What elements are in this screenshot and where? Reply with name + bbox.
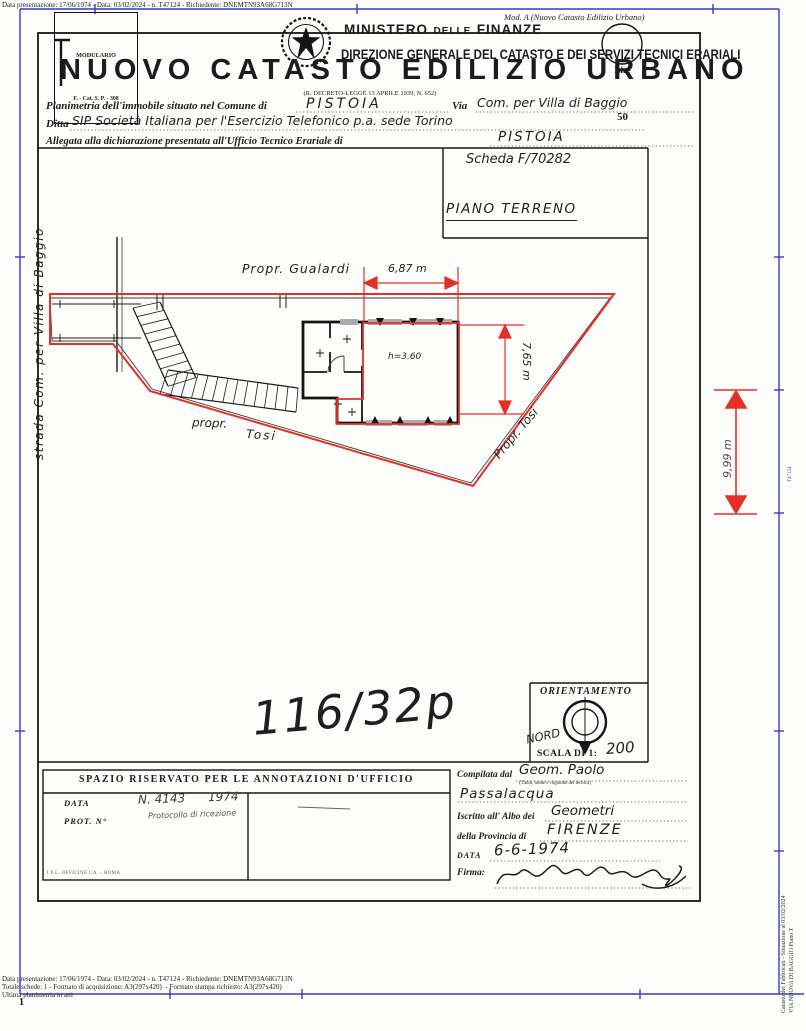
scanned-cadastral-sheet: { "scan": { "top_meta": "Data presentazi… bbox=[0, 0, 806, 1031]
compilata-value: Geom. Paolo bbox=[519, 763, 604, 779]
form-via-value: Com. per Villa di Baggio bbox=[477, 96, 627, 110]
signature-scrawl bbox=[497, 866, 686, 889]
form-allegata-label: Allegata alla dichiarazione presentata a… bbox=[46, 136, 343, 148]
bottom-meta-line-2: Totale schede: 1 - Formato di acquisizio… bbox=[2, 983, 282, 991]
stamp-underline bbox=[298, 807, 350, 809]
printer-mark: I.P.L. OFFICINE CA. - ROMA bbox=[47, 871, 121, 877]
lire-amount: 50 bbox=[604, 111, 641, 123]
cross-ticks bbox=[316, 335, 356, 416]
side-meta-line-2: VIA NUOVA DI BAGGIO Piano T bbox=[788, 845, 796, 1013]
top-meta-line: Data presentazione: 17/06/1974 - Data: 0… bbox=[2, 1, 293, 9]
dim-width-label: 6,87 m bbox=[388, 263, 427, 276]
room-height-label: h=3.60 bbox=[388, 352, 421, 362]
drawing-area-borders bbox=[38, 148, 648, 762]
floor-label: PIANO TERRENO bbox=[446, 202, 577, 221]
page-number: 1 bbox=[19, 997, 24, 1009]
sill-ticks bbox=[371, 318, 454, 424]
ruler-label: T47124 bbox=[788, 466, 794, 482]
form-allegata-value: PISTOIA bbox=[498, 130, 565, 146]
compiler-data-value: 6-6-1974 bbox=[494, 840, 571, 860]
document-line-art bbox=[0, 0, 806, 1031]
iscritto-label: Iscritto all' Albo dei bbox=[457, 812, 535, 823]
walkway bbox=[52, 294, 286, 342]
neighbor-tosi-left-2: Tosi bbox=[246, 428, 278, 444]
page-title: NUOVO CATASTO EDILIZIO URBANO bbox=[60, 54, 680, 87]
dim-height-arrow bbox=[460, 325, 524, 414]
annotations-prot-label: PROT. N° bbox=[64, 817, 107, 827]
ministry-word-3: FINANZE bbox=[477, 22, 543, 37]
iscritto-value: Geometri bbox=[551, 804, 614, 820]
firma-label: Firma: bbox=[457, 868, 485, 879]
compilata-label: Compilata dal bbox=[457, 770, 512, 781]
neighbor-tosi-left-1: propr. bbox=[192, 416, 228, 431]
annotations-title: SPAZIO RISERVATO PER LE ANNOTAZIONI D'UF… bbox=[43, 774, 450, 786]
dim-right-label: 9,99 m bbox=[722, 439, 735, 478]
scale-label: SCALA DI 1: bbox=[537, 749, 597, 760]
side-meta: Catasto dei Fabbricati - Situazione al 0… bbox=[780, 845, 796, 1013]
scheda-ref: Scheda F/70282 bbox=[466, 153, 571, 168]
form-line1-label: Planimetria dell'immobile situato nel Co… bbox=[46, 100, 267, 113]
compilata-value-2: Passalacqua bbox=[460, 787, 555, 803]
compass bbox=[564, 697, 606, 755]
bottom-meta-line-3: Ultima planimetria in atti bbox=[2, 991, 73, 999]
compiler-data-label: DATA bbox=[457, 851, 481, 860]
neighbor-gualardi-label: Propr. Gualardi bbox=[242, 262, 350, 276]
building bbox=[303, 318, 458, 426]
ministry-word-2: DELLE bbox=[433, 26, 471, 37]
annotations-data-label: DATA bbox=[64, 799, 90, 809]
scanner-frame bbox=[15, 4, 804, 999]
form-ditta-label: Ditta bbox=[46, 118, 69, 131]
street-label: strada Com. per Villa di Baggio bbox=[33, 150, 47, 460]
form-via-label: Via bbox=[452, 100, 467, 113]
side-meta-line-1: Catasto dei Fabbricati - Situazione al 0… bbox=[780, 845, 788, 1013]
form-line1-value: PISTOIA bbox=[306, 96, 382, 112]
unit-outline-red bbox=[337, 323, 459, 424]
dim-height-label: 7,65 m bbox=[519, 342, 532, 381]
ministry-line: MINISTERO DELLE FINANZE bbox=[344, 21, 542, 39]
orientation-title: ORIENTAMENTO bbox=[540, 686, 632, 698]
bottom-meta-line-1: Data presentazione: 17/06/1974 - Data: 0… bbox=[2, 975, 293, 983]
stairs bbox=[133, 302, 298, 412]
form-ditta-value: SIP Società Italiana per l'Esercizio Tel… bbox=[72, 114, 453, 128]
ministry-word-1: MINISTERO bbox=[344, 22, 428, 37]
scale-value: 200 bbox=[605, 739, 635, 758]
provincia-value: FIRENZE bbox=[547, 822, 623, 839]
